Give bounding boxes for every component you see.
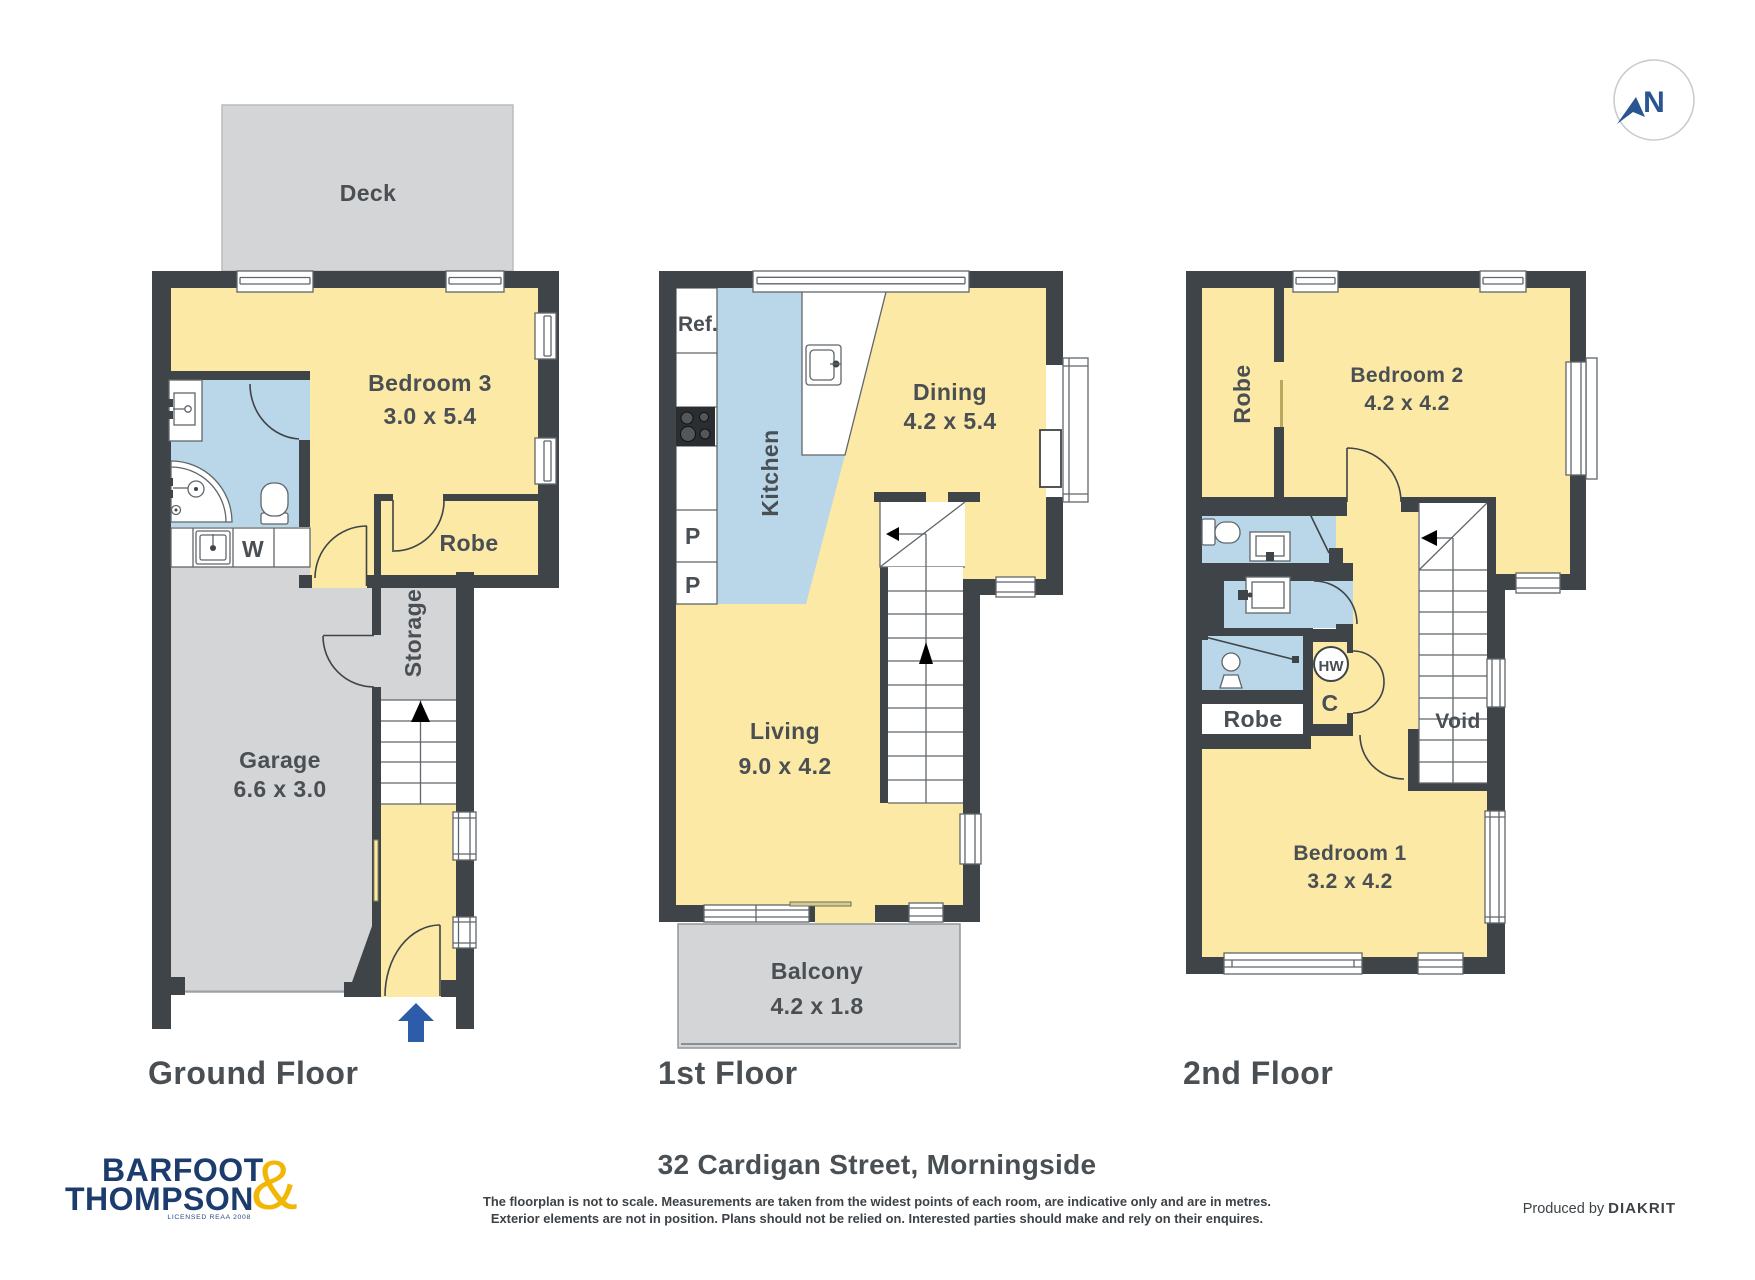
- svg-text:Deck: Deck: [340, 180, 397, 206]
- svg-text:Robe: Robe: [439, 530, 498, 556]
- svg-text:3.2 x 4.2: 3.2 x 4.2: [1307, 870, 1392, 893]
- svg-text:2nd Floor: 2nd Floor: [1183, 1055, 1333, 1091]
- svg-text:HW: HW: [1319, 658, 1345, 675]
- svg-text:LICENSED REAA 2008: LICENSED REAA 2008: [167, 1214, 251, 1221]
- svg-text:Robe: Robe: [1223, 706, 1282, 732]
- svg-text:Kitchen: Kitchen: [757, 429, 783, 516]
- svg-text:W: W: [242, 536, 264, 562]
- svg-text:Living: Living: [750, 718, 820, 744]
- svg-text:N: N: [1643, 86, 1665, 119]
- svg-text:Ref.: Ref.: [678, 313, 718, 336]
- svg-text:P: P: [685, 572, 701, 598]
- svg-text:Ground Floor: Ground Floor: [148, 1055, 358, 1091]
- svg-text:THOMPSON: THOMPSON: [65, 1181, 254, 1217]
- svg-text:3.0 x 5.4: 3.0 x 5.4: [383, 403, 476, 429]
- svg-text:32 Cardigan Street, Morningsid: 32 Cardigan Street, Morningside: [658, 1149, 1097, 1180]
- svg-text:C: C: [1321, 690, 1338, 716]
- svg-text:Bedroom 3: Bedroom 3: [368, 370, 492, 396]
- svg-text:9.0 x 4.2: 9.0 x 4.2: [738, 753, 831, 779]
- svg-text:Dining: Dining: [913, 379, 987, 405]
- svg-text:6.6 x 3.0: 6.6 x 3.0: [233, 776, 326, 802]
- svg-text:Bedroom 1: Bedroom 1: [1293, 842, 1406, 865]
- svg-text:4.2 x 4.2: 4.2 x 4.2: [1364, 392, 1449, 415]
- svg-text:Storage: Storage: [400, 589, 426, 677]
- svg-text:The floorplan is not to scale.: The floorplan is not to scale. Measureme…: [483, 1194, 1271, 1209]
- svg-text:Balcony: Balcony: [771, 958, 863, 984]
- svg-text:4.2 x 1.8: 4.2 x 1.8: [770, 993, 863, 1019]
- svg-text:Produced by DIAKRIT: Produced by DIAKRIT: [1523, 1200, 1676, 1217]
- svg-text:P: P: [685, 523, 701, 549]
- svg-text:1st Floor: 1st Floor: [658, 1055, 798, 1091]
- svg-text:Void: Void: [1435, 710, 1481, 733]
- svg-text:Garage: Garage: [239, 747, 321, 773]
- svg-text:&: &: [251, 1146, 298, 1224]
- svg-text:Bedroom 2: Bedroom 2: [1350, 364, 1463, 387]
- svg-text:4.2 x 5.4: 4.2 x 5.4: [903, 408, 996, 434]
- svg-text:Exterior elements are not in p: Exterior elements are not in position. P…: [491, 1211, 1263, 1226]
- svg-text:Robe: Robe: [1229, 364, 1255, 423]
